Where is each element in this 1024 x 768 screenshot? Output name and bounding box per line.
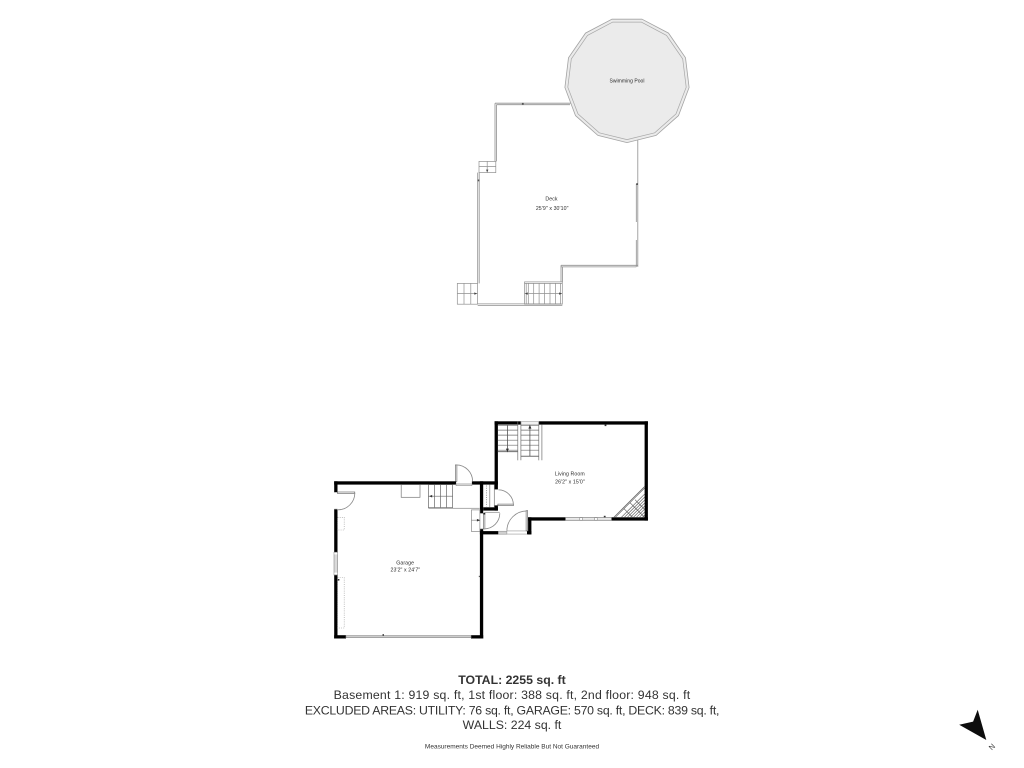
svg-text:25'9" x 30'10": 25'9" x 30'10" — [536, 206, 569, 212]
svg-text:Measurements Deemed Highly Rel: Measurements Deemed Highly Reliable But … — [425, 743, 600, 750]
svg-text:EXCLUDED AREAS: UTILITY: 76 sq: EXCLUDED AREAS: UTILITY: 76 sq. ft, GARA… — [305, 703, 719, 717]
svg-text:Garage: Garage — [396, 561, 414, 567]
svg-text:Living Room: Living Room — [555, 472, 585, 478]
svg-text:WALLS: 224 sq. ft: WALLS: 224 sq. ft — [463, 718, 562, 732]
svg-text:26'2" x 15'0": 26'2" x 15'0" — [555, 479, 585, 485]
svg-text:Swimming Pool: Swimming Pool — [609, 79, 644, 85]
svg-text:Basement 1: 919 sq. ft, 1st fl: Basement 1: 919 sq. ft, 1st floor: 388 s… — [334, 688, 691, 702]
svg-text:Deck: Deck — [545, 197, 558, 203]
svg-text:TOTAL: 2255 sq. ft: TOTAL: 2255 sq. ft — [458, 673, 566, 687]
svg-text:23'2" x 24'7": 23'2" x 24'7" — [391, 568, 421, 574]
